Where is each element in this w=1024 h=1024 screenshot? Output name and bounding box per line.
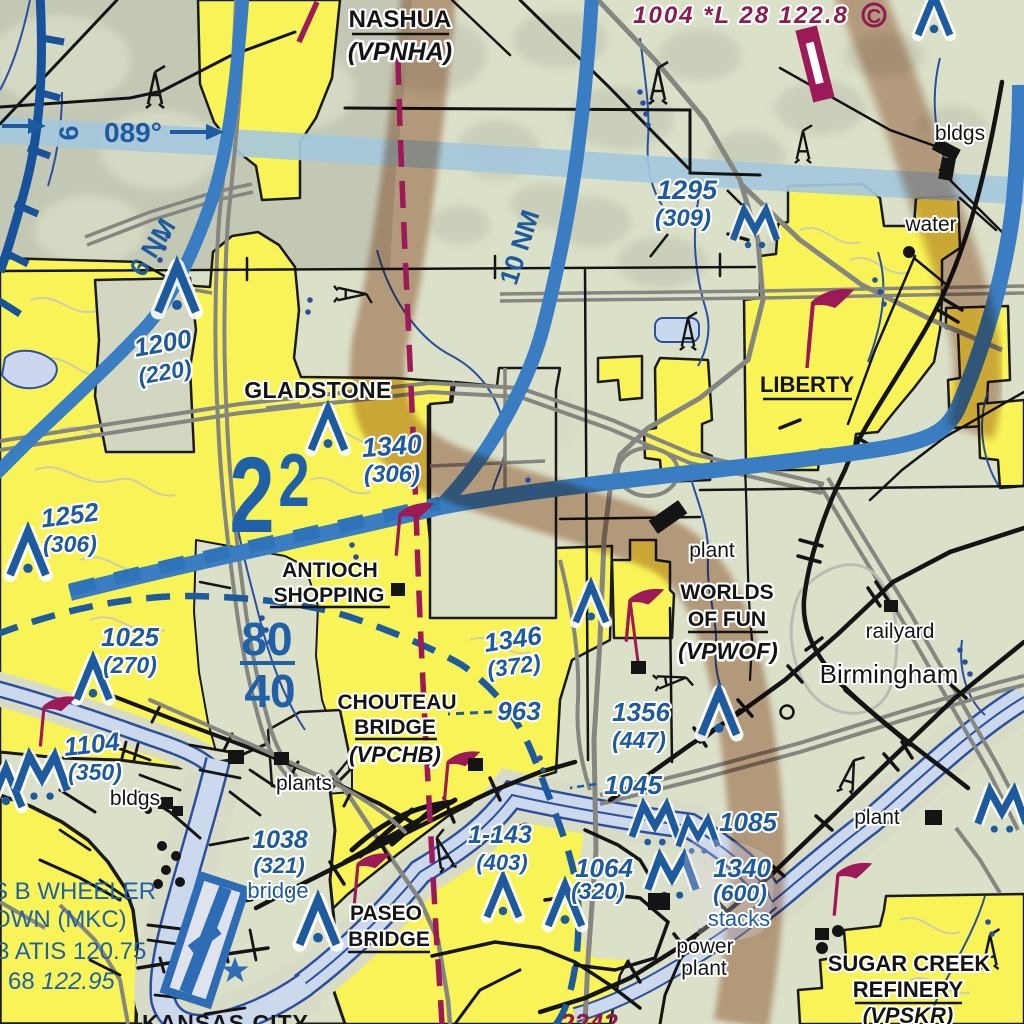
svg-text:LIBERTY: LIBERTY — [760, 372, 854, 397]
svg-text:(309): (309) — [655, 205, 711, 232]
svg-text:1004 *L 28 122.8: 1004 *L 28 122.8 — [633, 2, 849, 29]
svg-text:68 122.95: 68 122.95 — [8, 968, 115, 995]
svg-text:3 ATIS 120.75: 3 ATIS 120.75 — [0, 938, 146, 965]
svg-text:C: C — [867, 6, 881, 28]
svg-text:stacks: stacks — [708, 906, 770, 931]
svg-text:bldgs: bldgs — [110, 787, 160, 810]
svg-text:(306): (306) — [364, 461, 420, 488]
svg-text:(320): (320) — [571, 878, 625, 904]
svg-text:089°: 089° — [104, 117, 162, 148]
svg-text:plant: plant — [681, 957, 727, 980]
svg-text:KANSAS CITY: KANSAS CITY — [142, 1010, 309, 1024]
svg-text:(VPCHB): (VPCHB) — [349, 742, 441, 767]
svg-text:bridge: bridge — [247, 878, 308, 903]
svg-text:BRIDGE: BRIDGE — [348, 928, 430, 951]
svg-text:OWN (MKC): OWN (MKC) — [0, 906, 127, 933]
svg-text:1085: 1085 — [719, 807, 777, 837]
svg-text:(270): (270) — [103, 652, 157, 678]
svg-text:1038: 1038 — [252, 826, 308, 854]
svg-text:power: power — [676, 935, 733, 958]
svg-text:1340: 1340 — [361, 429, 423, 463]
svg-text:6: 6 — [54, 125, 84, 140]
svg-text:1295: 1295 — [657, 175, 718, 205]
svg-text:railyard: railyard — [866, 620, 935, 643]
svg-text:(600): (600) — [713, 880, 767, 906]
svg-text:2242: 2242 — [559, 1008, 618, 1024]
svg-text:WORLDS: WORLDS — [680, 581, 773, 604]
svg-text:plants: plants — [276, 772, 332, 795]
svg-text:Birmingham: Birmingham — [820, 659, 959, 689]
svg-text:1340: 1340 — [713, 853, 771, 883]
svg-text:water: water — [904, 213, 956, 236]
svg-text:80: 80 — [241, 613, 292, 665]
svg-text:PASEO: PASEO — [350, 902, 422, 925]
svg-text:REFINERY: REFINERY — [853, 977, 964, 1002]
svg-text:1104: 1104 — [62, 726, 121, 762]
svg-text:(403): (403) — [476, 850, 527, 875]
svg-text:2: 2 — [278, 439, 309, 523]
svg-text:1356: 1356 — [612, 697, 670, 727]
svg-text:(VPWOF): (VPWOF) — [678, 638, 778, 664]
svg-text:(447): (447) — [612, 727, 666, 753]
svg-text:1045: 1045 — [604, 770, 662, 800]
svg-text:(306): (306) — [43, 531, 97, 557]
svg-text:SHOPPING: SHOPPING — [274, 584, 385, 607]
svg-text:(VPSKR): (VPSKR) — [863, 1003, 953, 1024]
svg-text:1-143: 1-143 — [468, 821, 532, 849]
svg-text:1025: 1025 — [101, 622, 159, 652]
svg-text:S B WHEELER: S B WHEELER — [0, 878, 156, 905]
svg-text:40: 40 — [244, 665, 295, 717]
svg-text:NASHUA: NASHUA — [349, 6, 452, 33]
svg-text:ANTIOCH: ANTIOCH — [282, 559, 378, 582]
svg-text:BRIDGE: BRIDGE — [354, 716, 436, 739]
svg-text:bldgs: bldgs — [935, 122, 985, 145]
svg-text:GLADSTONE: GLADSTONE — [244, 377, 392, 403]
svg-text:plant: plant — [689, 539, 735, 562]
svg-text:plant: plant — [854, 806, 900, 829]
svg-text:CHOUTEAU: CHOUTEAU — [338, 691, 457, 714]
svg-text:(321): (321) — [253, 853, 304, 878]
svg-text:OF FUN: OF FUN — [688, 608, 766, 631]
svg-text:963: 963 — [497, 696, 541, 726]
svg-text:2: 2 — [229, 436, 274, 556]
svg-text:(350): (350) — [68, 759, 122, 785]
svg-text:SUGAR CREEK: SUGAR CREEK — [828, 951, 991, 976]
svg-text:(VPNHA): (VPNHA) — [348, 38, 452, 66]
